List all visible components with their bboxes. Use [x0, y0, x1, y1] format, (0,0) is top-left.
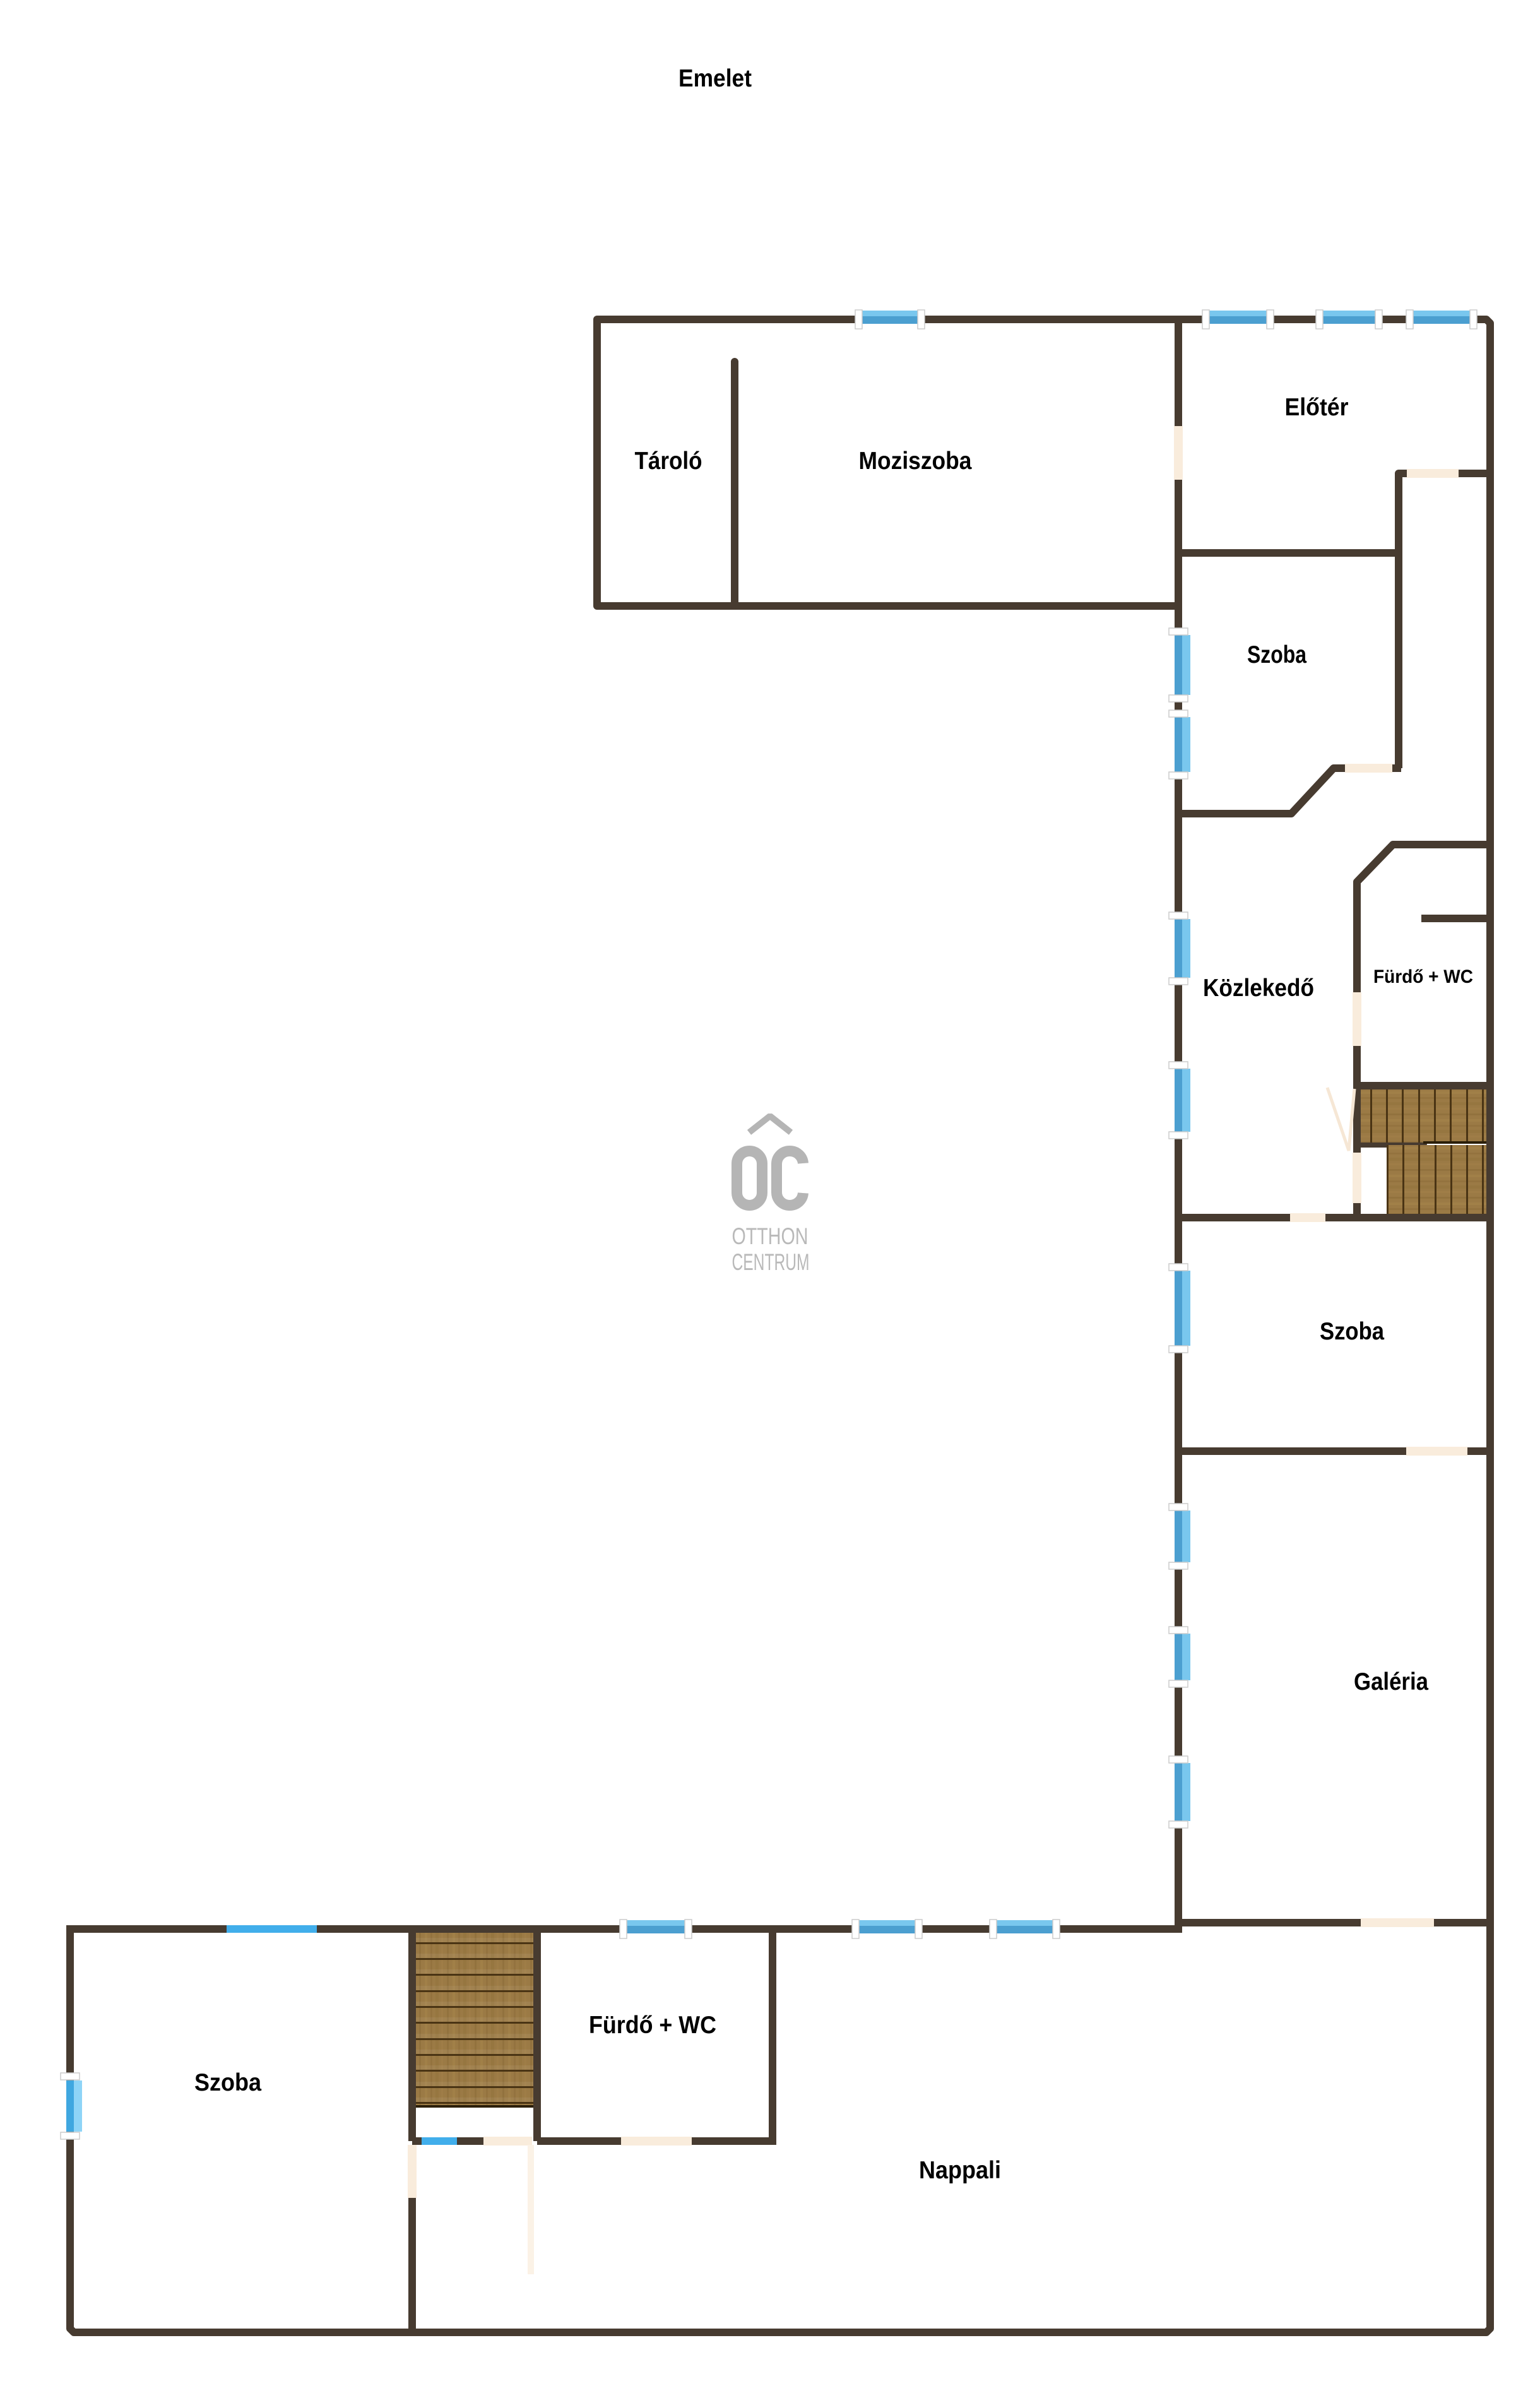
svg-text:Szoba: Szoba [194, 2069, 261, 2096]
svg-text:Fürdő + WC: Fürdő + WC [1373, 966, 1473, 987]
svg-text:Fürdő + WC: Fürdő + WC [589, 2012, 716, 2039]
svg-text:Közlekedő: Közlekedő [1203, 975, 1314, 1002]
svg-text:Tároló: Tároló [635, 448, 702, 475]
svg-text:CENTRUM: CENTRUM [732, 1249, 810, 1275]
svg-text:Szoba: Szoba [1247, 641, 1306, 668]
svg-text:Moziszoba: Moziszoba [859, 448, 972, 475]
svg-text:Nappali: Nappali [919, 2157, 1001, 2184]
svg-text:Előtér: Előtér [1285, 394, 1349, 421]
svg-text:OTTHON: OTTHON [732, 1223, 808, 1249]
svg-text:Emelet: Emelet [678, 65, 752, 92]
svg-text:Szoba: Szoba [1320, 1318, 1384, 1345]
svg-text:Galéria: Galéria [1354, 1668, 1428, 1695]
